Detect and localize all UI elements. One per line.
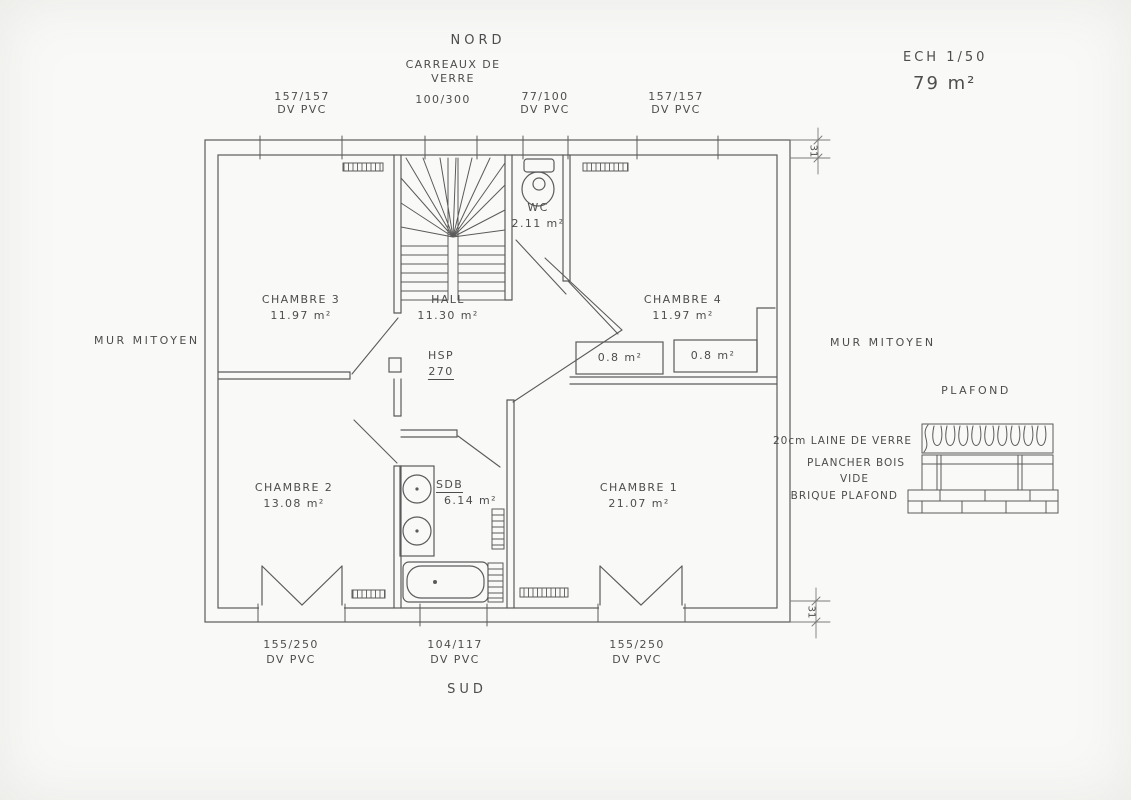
ceiling-layer-brick: BRIQUE PLAFOND (791, 488, 898, 504)
room-label-chambre2: CHAMBRE 2 13.08 m² (255, 480, 333, 512)
window-label-bottom-middle: 104/117 DV PVC (427, 637, 483, 667)
window-label-bottom-left: 155/250 DV PVC (263, 637, 319, 667)
window-label-top-right: 157/157 DV PVC (648, 90, 704, 116)
room-label-chambre4: CHAMBRE 4 11.97 m² (644, 292, 722, 324)
wall-thickness-top: 31 (804, 145, 820, 158)
ceiling-height-label: HSP 270 (428, 348, 454, 380)
ceiling-layer-void: VIDE (840, 471, 869, 487)
total-area-label: 79 m² (913, 76, 976, 92)
french-window-chambre1 (600, 566, 682, 605)
towel-radiator-icon (488, 509, 504, 602)
door-swings (352, 240, 622, 467)
party-wall-left-label: MUR MITOYEN (94, 333, 200, 349)
party-wall-right-label: MUR MITOYEN (830, 335, 936, 351)
room-label-sdb: SDB 6.14 m² (436, 477, 497, 509)
room-label-chambre3: CHAMBRE 3 11.97 m² (262, 292, 340, 324)
staircase (401, 158, 505, 300)
toilet-icon (522, 159, 554, 206)
room-label-wc: WC 2.11 m² (512, 200, 565, 232)
window-label-bottom-right: 155/250 DV PVC (609, 637, 665, 667)
ceiling-layer-wood-floor: PLANCHER BOIS (807, 455, 905, 471)
room-label-hall: HALL 11.30 m² (417, 292, 478, 324)
dimension-marks (790, 128, 830, 638)
radiator-icons (343, 163, 628, 598)
room-label-chambre1: CHAMBRE 1 21.07 m² (600, 480, 678, 512)
compass-north: NORD (451, 33, 506, 49)
closet-left-area: 0.8 m² (598, 350, 643, 366)
compass-south: SUD (447, 682, 487, 698)
washbasins-icon (400, 466, 434, 556)
window-label-top-left: 157/157 DV PVC (274, 90, 330, 116)
scale-label: ECH 1/50 (903, 50, 987, 66)
scanned-floor-plan: NORD SUD CARREAUX DE VERRE 100/300 157/1… (0, 0, 1131, 800)
ceiling-section-title: PLAFOND (941, 383, 1011, 399)
ceiling-section-drawing (908, 424, 1058, 513)
floor-plan-drawing (0, 0, 1131, 800)
wall-thickness-bottom: 31 (802, 606, 818, 619)
bathtub-icon (403, 562, 488, 602)
interior-walls (218, 155, 777, 608)
closet-right-area: 0.8 m² (691, 348, 736, 364)
window-label-top-wc: 77/100 DV PVC (520, 90, 570, 116)
exterior-walls (205, 140, 790, 622)
french-window-chambre2 (262, 566, 342, 605)
ceiling-layer-insulation: 20cm LAINE DE VERRE (773, 433, 912, 449)
glass-blocks-size: 100/300 (415, 92, 471, 108)
glass-blocks-label: CARREAUX DE VERRE (406, 58, 501, 86)
